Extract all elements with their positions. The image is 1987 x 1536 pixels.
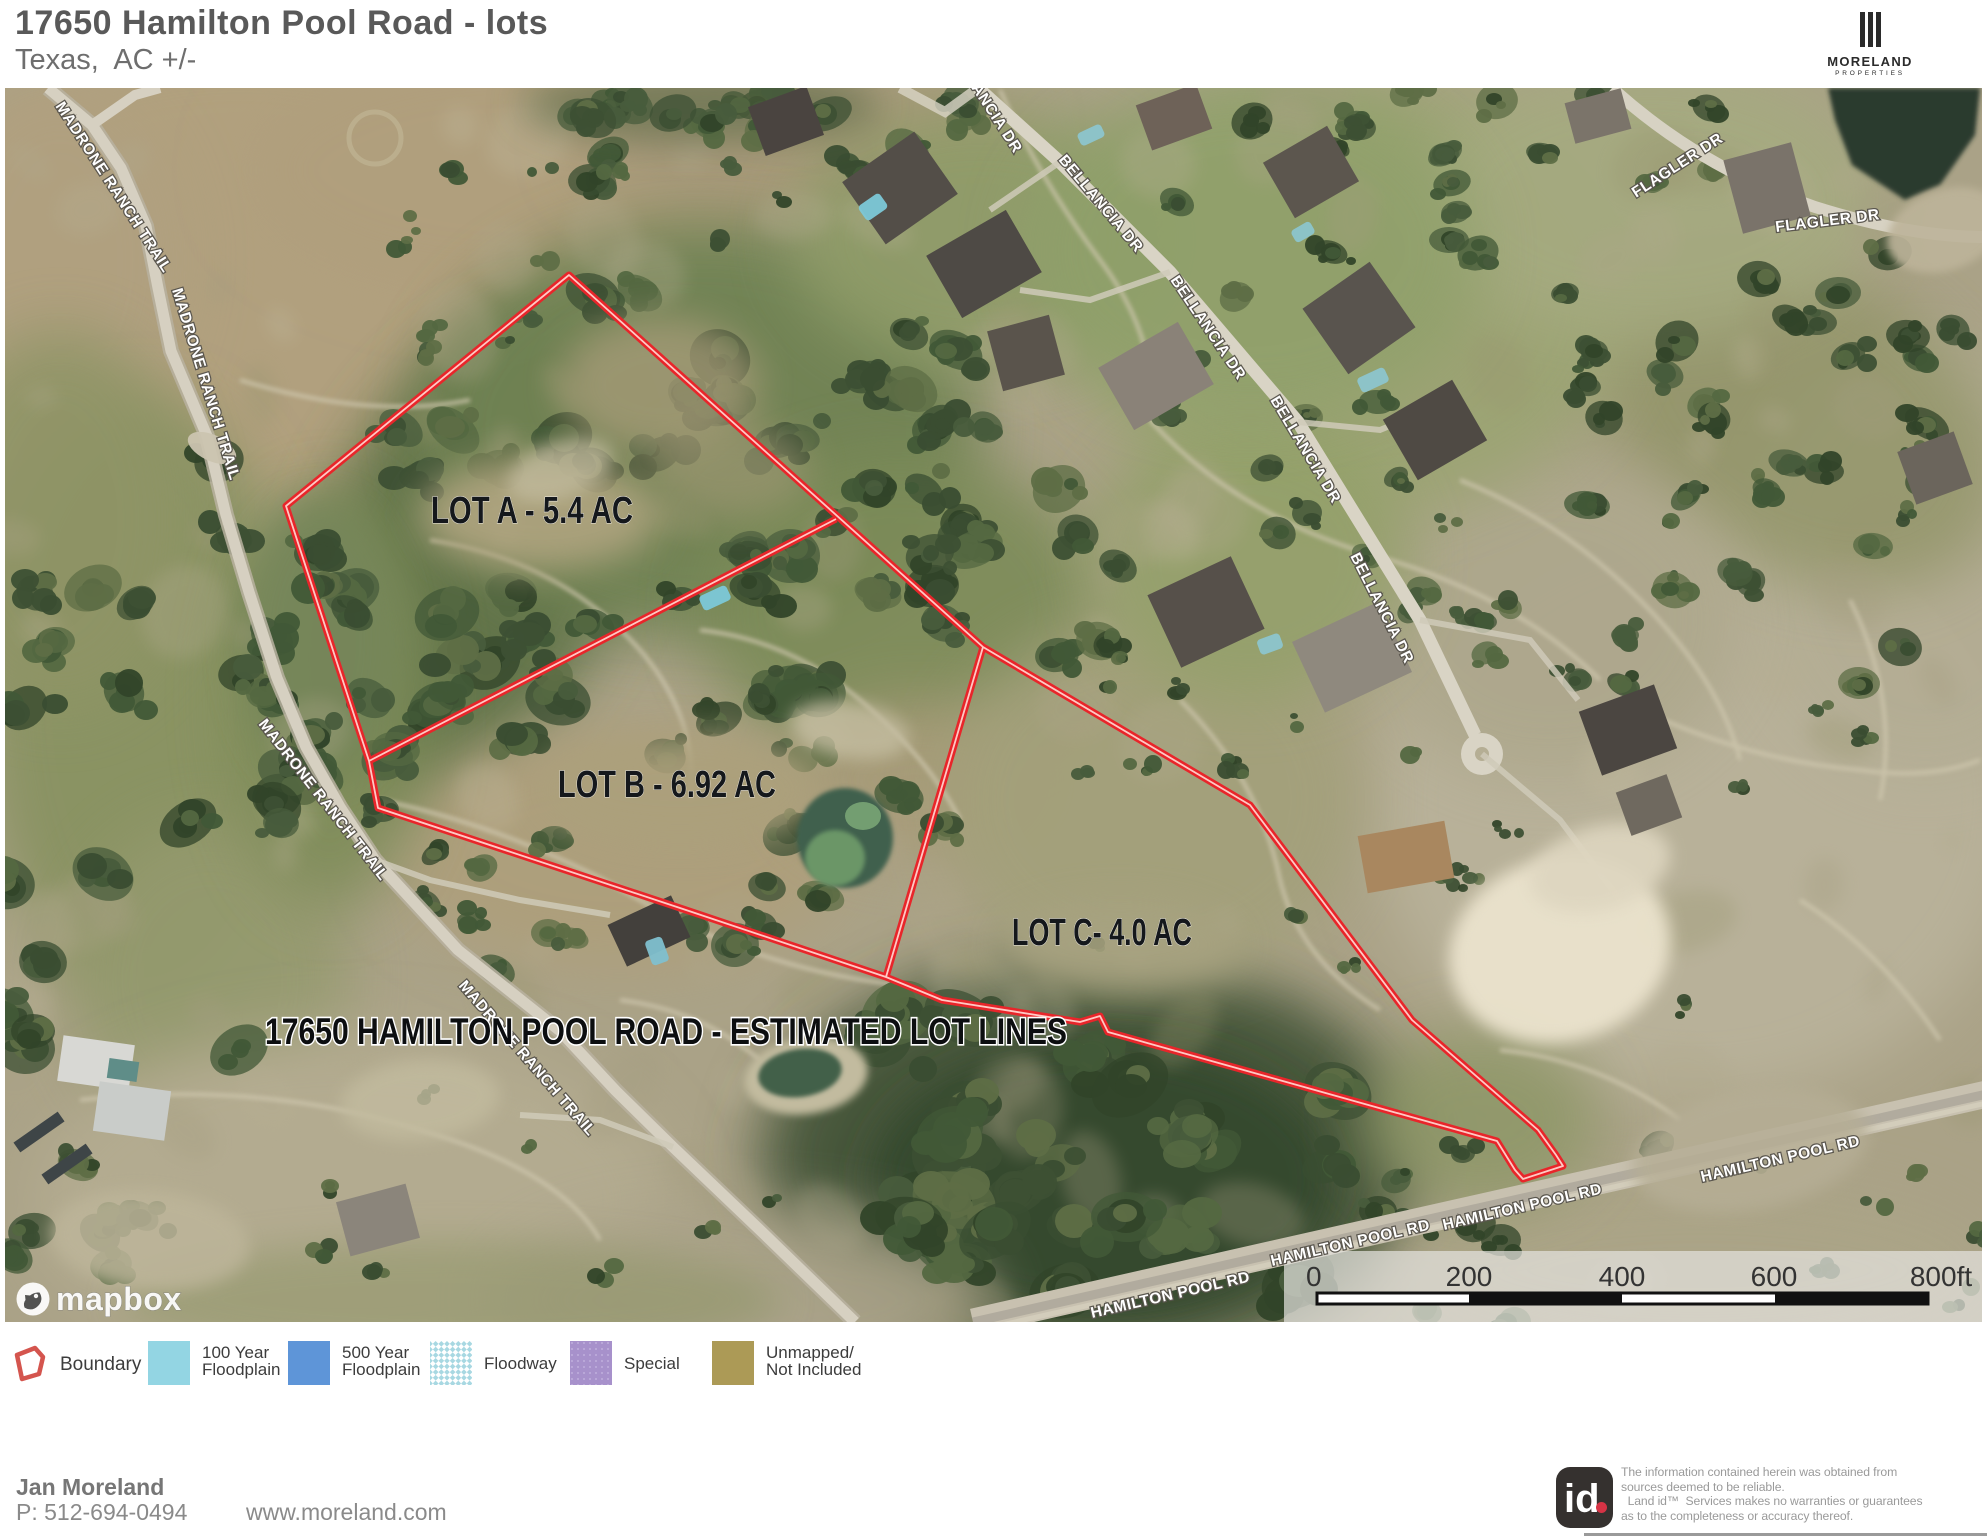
svg-text:LOT A - 5.4 AC: LOT A - 5.4 AC: [431, 490, 633, 532]
svg-text:LOT C- 4.0 AC: LOT C- 4.0 AC: [1012, 912, 1192, 954]
svg-text:600: 600: [1751, 1261, 1798, 1292]
svg-text:0: 0: [1306, 1261, 1322, 1292]
svg-text:LOT B - 6.92 AC: LOT B - 6.92 AC: [558, 764, 776, 806]
svg-text:800ft: 800ft: [1910, 1261, 1972, 1292]
svg-text:200: 200: [1446, 1261, 1493, 1292]
svg-text:400: 400: [1599, 1261, 1646, 1292]
svg-text:mapbox: mapbox: [56, 1281, 182, 1317]
svg-text:17650 HAMILTON POOL ROAD - EST: 17650 HAMILTON POOL ROAD - ESTIMATED LOT…: [265, 1011, 1067, 1052]
svg-text:id: id: [1564, 1477, 1600, 1521]
